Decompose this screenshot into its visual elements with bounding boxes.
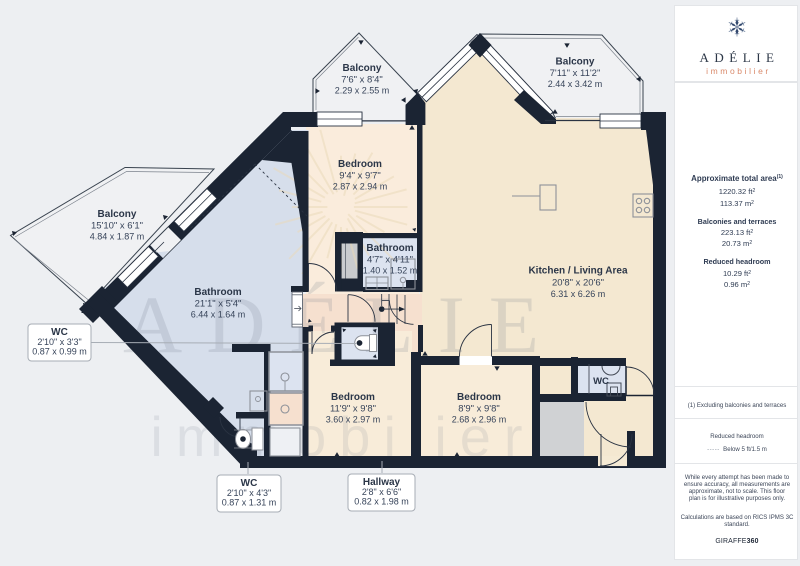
svg-text:Kitchen / Living Area: Kitchen / Living Area [528,266,628,277]
svg-text:6.31 x 6.26 m: 6.31 x 6.26 m [551,289,606,299]
svg-text:7'11" x 11'2": 7'11" x 11'2" [550,68,601,79]
svg-text:9'4" x 9'7": 9'4" x 9'7" [339,171,381,182]
svg-text:Balcony: Balcony [98,209,137,220]
svg-text:2.87 x 2.94 m: 2.87 x 2.94 m [333,182,388,192]
svg-text:21'1" x 5'4": 21'1" x 5'4" [195,299,242,310]
svg-text:0.82 x 1.98 m: 0.82 x 1.98 m [354,497,409,507]
svg-text:4'7" x 4'11": 4'7" x 4'11" [367,255,413,266]
svg-text:3.60 x 2.97 m: 3.60 x 2.97 m [326,415,381,425]
svg-text:Bedroom: Bedroom [331,392,375,403]
svg-text:2.29 x 2.55 m: 2.29 x 2.55 m [335,86,390,96]
svg-text:2'10" x 4'3": 2'10" x 4'3" [227,488,271,498]
svg-text:Balcony: Balcony [343,63,382,74]
svg-text:Balcony: Balcony [556,57,595,68]
svg-text:2'10" x 3'3": 2'10" x 3'3" [37,337,81,347]
svg-text:1.40 x 1.52 m: 1.40 x 1.52 m [363,266,418,276]
svg-text:WC: WC [593,376,609,387]
svg-text:Bedroom: Bedroom [338,159,382,170]
svg-text:11'9" x 9'8": 11'9" x 9'8" [330,404,376,415]
svg-text:8'9" x 9'8": 8'9" x 9'8" [458,404,500,415]
svg-text:Bathroom: Bathroom [194,287,241,298]
svg-text:15'10" x 6'1": 15'10" x 6'1" [91,221,143,232]
svg-text:20'8" x 20'6": 20'8" x 20'6" [552,278,604,289]
svg-text:0.87 x 1.31 m: 0.87 x 1.31 m [222,498,277,508]
svg-text:0.87 x 0.99 m: 0.87 x 0.99 m [32,347,87,357]
svg-text:4.84 x 1.87 m: 4.84 x 1.87 m [90,232,145,242]
svg-text:7'6" x 8'4": 7'6" x 8'4" [341,75,383,86]
svg-text:Bedroom: Bedroom [457,392,501,403]
svg-text:2.68 x 2.96 m: 2.68 x 2.96 m [452,415,507,425]
svg-text:Bathroom: Bathroom [366,243,413,254]
svg-text:6.44 x 1.64 m: 6.44 x 1.64 m [191,310,246,320]
svg-text:2'8" x 6'6": 2'8" x 6'6" [362,487,401,497]
svg-text:2.44 x 3.42 m: 2.44 x 3.42 m [548,79,603,89]
